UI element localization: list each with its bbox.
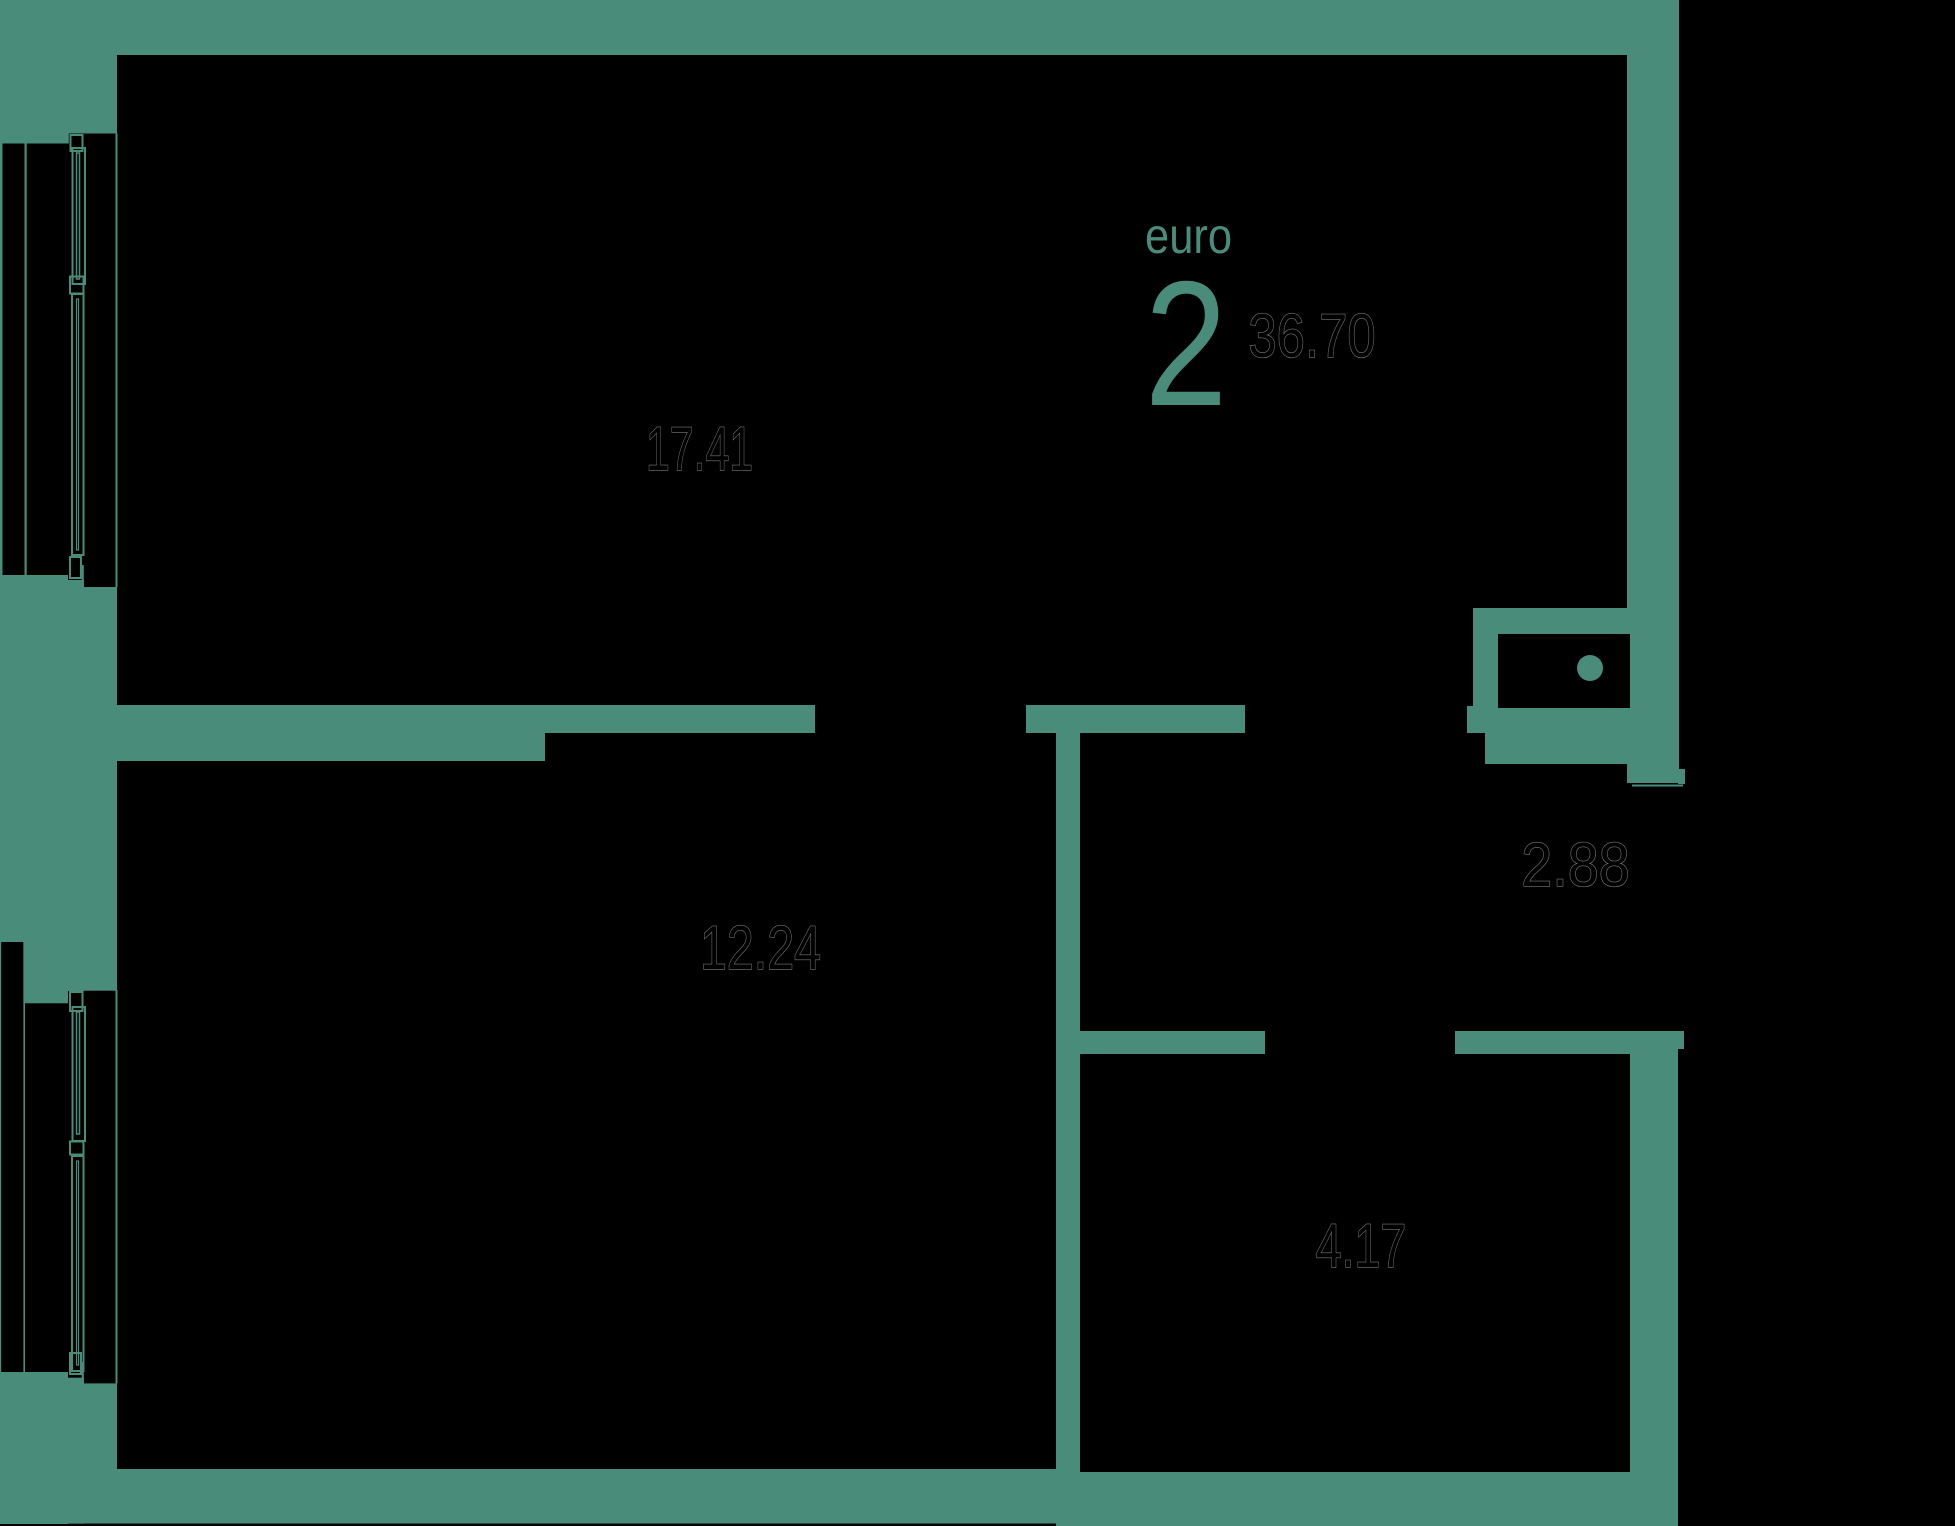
svg-text:4.17: 4.17 — [1316, 1210, 1407, 1280]
svg-text:12.24: 12.24 — [700, 913, 821, 982]
svg-text:36.70: 36.70 — [1248, 302, 1375, 371]
svg-text:2: 2 — [1145, 243, 1228, 443]
svg-text:2.88: 2.88 — [1521, 831, 1630, 899]
svg-text:17.41: 17.41 — [646, 415, 753, 484]
